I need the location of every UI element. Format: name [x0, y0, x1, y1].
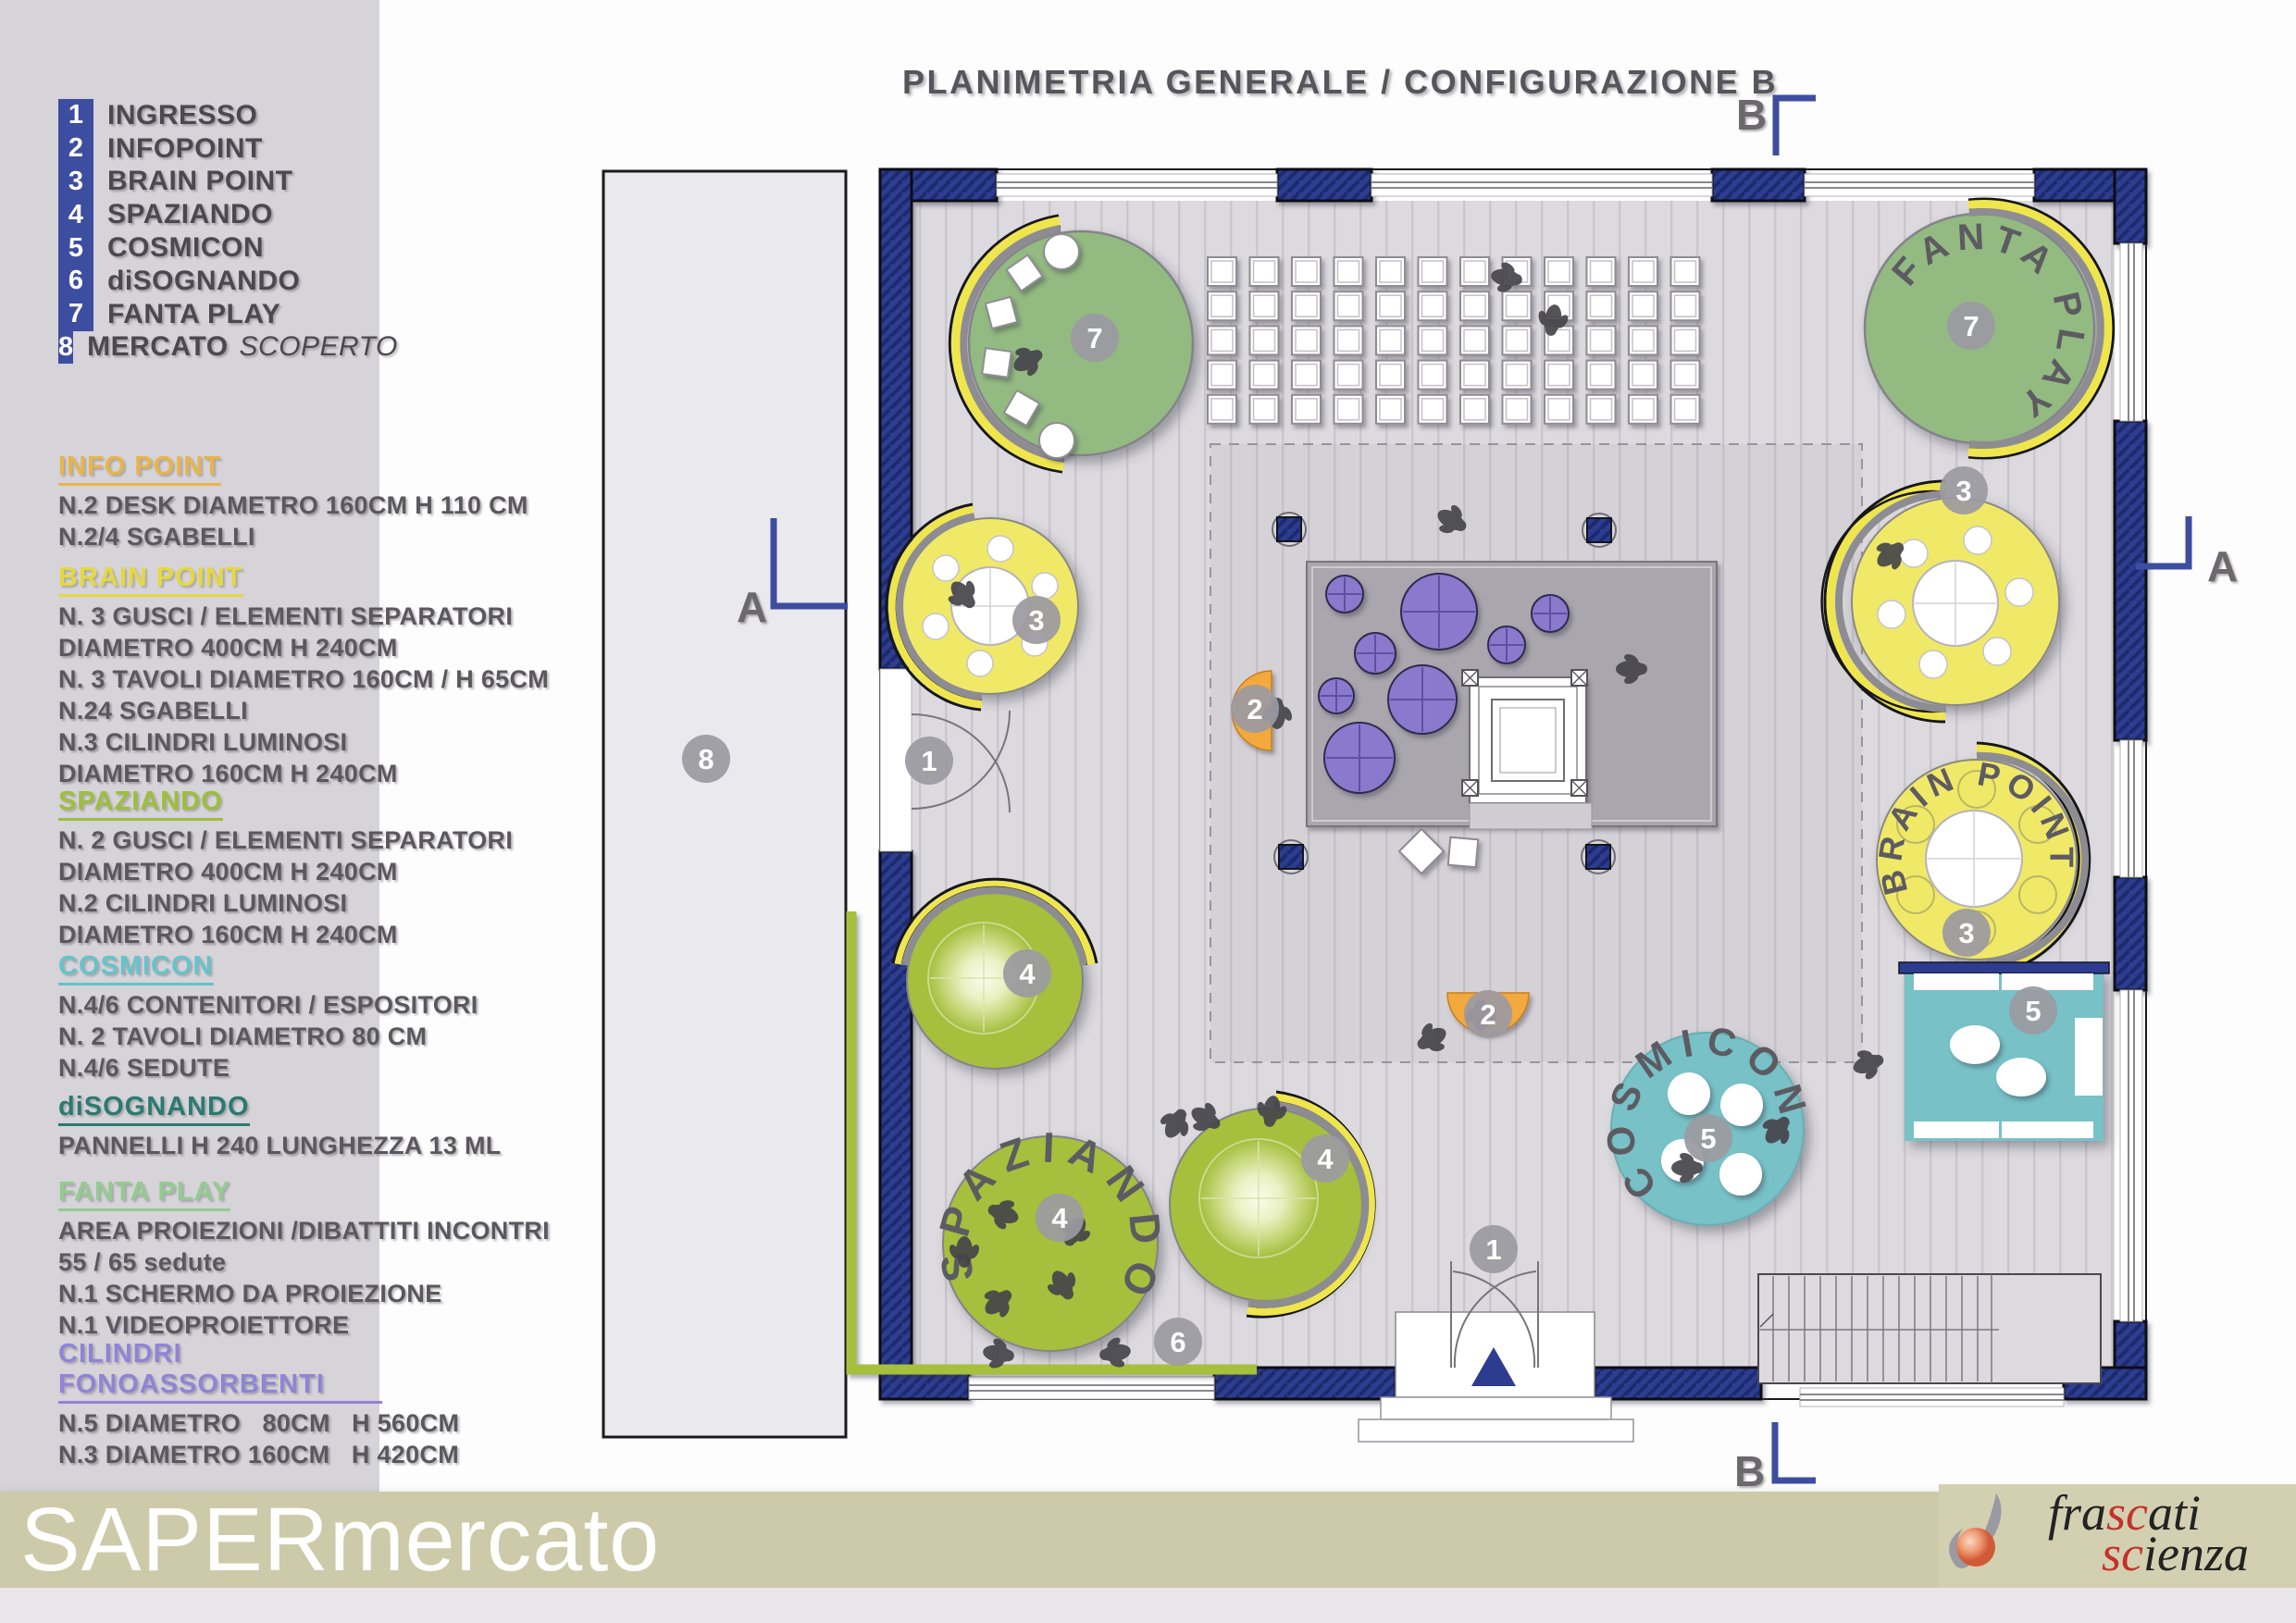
badge-number: 4	[1317, 1143, 1334, 1175]
area-badges: 1 1 2 2 3 3 3 4 4 4 5 5 6 7 7 8	[682, 302, 2057, 1366]
wall-segment	[880, 851, 912, 1368]
badge-number: 3	[1958, 917, 1974, 949]
legend-list: 1 INGRESSO 2 INFOPOINT 3 BRAIN POINT 4 S…	[0, 99, 379, 364]
luminous-glow	[1201, 1141, 1316, 1256]
spec-line: N. 2 GUSCI / ELEMENTI SEPARATORI	[58, 824, 382, 856]
window	[1800, 1388, 2064, 1406]
brand-wordmark: SAPERmercato	[20, 1492, 660, 1588]
badge-fanta-play: 7	[1947, 302, 1995, 350]
legend-item-spaziando: 4 SPAZIANDO	[0, 198, 379, 231]
fanta-play-label: FANTA PLAY	[1884, 217, 2091, 429]
truss-corners	[1462, 670, 1587, 796]
section-letter: A	[2207, 542, 2238, 590]
footer-band: SAPERmercato frascati scienza	[0, 1492, 2296, 1588]
spec-line: N.2 DESK DIAMETRO 160CM H 110 CM	[58, 489, 382, 521]
column	[1274, 840, 1308, 873]
spec-line: DIAMETRO 400CM H 240CM	[58, 856, 382, 887]
legend-item-fanta-play: 7 FANTA PLAY	[0, 298, 379, 331]
projection-zone-boundary	[1210, 444, 1862, 1062]
spec-section-disognando: diSOGNANDO PANNELLI H 240 LUNGHEZZA 13 M…	[58, 1092, 382, 1161]
spec-title: CILINDRI FONOASSORBENTI	[58, 1339, 382, 1404]
cylinder-cross-lines	[1321, 576, 1567, 791]
legend-label: diSOGNANDO	[107, 265, 300, 298]
spec-section-cosmicon: COSMICON N.4/6 CONTENITORI / ESPOSITORI …	[58, 951, 382, 1084]
logo-text: fra	[2048, 1485, 2106, 1541]
spec-section-cilindri: CILINDRI FONOASSORBENTI N.5 DIAMETRO 80C…	[58, 1339, 382, 1470]
wall-segment	[2115, 1321, 2146, 1399]
logo-text: ienza	[2143, 1526, 2249, 1581]
round-table	[951, 567, 1029, 645]
logo-word-scienza: scienza	[2102, 1525, 2249, 1582]
wall-segment	[2034, 169, 2146, 201]
legend-item-ingresso: 1 INGRESSO	[0, 99, 379, 132]
cylinder-small	[1488, 626, 1525, 663]
spec-title: SPAZIANDO	[58, 787, 223, 821]
legend-number: 7	[58, 298, 93, 331]
disognando-panels	[851, 911, 1257, 1369]
bottom-strip	[0, 1588, 2296, 1623]
badge-brain-point: 3	[1940, 466, 1988, 514]
window	[997, 174, 1277, 196]
spec-line: AREA PROIEZIONI /DIBATTITI INCONTRI	[58, 1215, 382, 1246]
spec-line: N.4/6 SEDUTE	[58, 1052, 382, 1084]
brain-point-area-right	[1822, 481, 2059, 722]
cylinder-small	[1532, 595, 1569, 632]
mercato-scoperto-area	[603, 171, 846, 1437]
stool-outlines	[1897, 771, 2056, 948]
side-door-swing	[912, 711, 1010, 812]
section-line-b-top	[1776, 98, 1816, 155]
column	[1582, 514, 1616, 547]
badge-mercato: 8	[682, 735, 730, 783]
wall-segment	[1214, 1368, 1396, 1399]
fanta-play-area-right: FANTA PLAY	[1865, 199, 2114, 458]
walls	[880, 169, 2146, 1399]
badge-number: 7	[1086, 322, 1102, 354]
spec-section-fanta-play: FANTA PLAY AREA PROIEZIONI /DIBATTITI IN…	[58, 1177, 382, 1341]
window	[1805, 174, 2034, 196]
spec-section-spaziando: SPAZIANDO N. 2 GUSCI / ELEMENTI SEPARATO…	[58, 787, 382, 950]
legend-number: 5	[58, 231, 93, 265]
badge-spaziando: 4	[1003, 949, 1051, 997]
badge-ingresso: 1	[905, 737, 953, 785]
wall-segment	[1277, 169, 1371, 201]
badge-number: 2	[1247, 693, 1262, 725]
badge-number: 5	[2025, 995, 2041, 1027]
logo-mark-icon	[1939, 1484, 2050, 1588]
brain-point-area-labeled: BRAIN POINT	[1870, 743, 2089, 975]
legend-number: 2	[58, 132, 93, 166]
badge-number: 3	[1028, 604, 1044, 637]
legend-label: SPAZIANDO	[107, 198, 273, 231]
wall-segment	[2064, 1368, 2146, 1399]
window	[969, 1377, 1214, 1399]
entrance-step	[1359, 1419, 1633, 1442]
spec-title: COSMICON	[58, 951, 214, 985]
spec-line: N.24 SGABELLI	[58, 695, 382, 726]
badge-number: 8	[698, 743, 714, 775]
cylinder-small	[1326, 576, 1363, 613]
badge-disognando: 6	[1154, 1318, 1202, 1366]
carpet-inner-line	[1312, 567, 1711, 821]
display-boxes	[1399, 829, 1478, 873]
spec-line: N.5 DIAMETRO 80CM H 560CM	[58, 1407, 382, 1439]
structural-columns	[1272, 513, 1616, 873]
spec-line: N. 3 TAVOLI DIAMETRO 160CM / H 65CM	[58, 663, 382, 695]
wall-segment	[880, 169, 912, 669]
spec-line: N. 2 TAVOLI DIAMETRO 80 CM	[58, 1021, 382, 1052]
legend-item-cosmicon: 5 COSMICON	[0, 231, 379, 265]
entrance-arrow	[1471, 1347, 1516, 1386]
carpet	[1307, 562, 1717, 826]
badge-number: 3	[1955, 475, 1971, 507]
spec-line: N.1 SCHERMO DA PROIEZIONE	[58, 1278, 382, 1309]
fanta-play-area-left	[949, 216, 1193, 472]
badge-brain-point: 3	[1012, 596, 1061, 644]
projection-stage	[1462, 670, 1592, 829]
section-line-a-right	[2136, 516, 2189, 566]
cylinder-small	[1355, 633, 1396, 674]
stage-platform	[1470, 803, 1592, 829]
spaziando-label: SPAZIANDO	[928, 1123, 1172, 1314]
spec-line: N.3 CILINDRI LUMINOSI	[58, 726, 382, 758]
legend-item-mercato: 8 MERCATOSCOPERTO	[0, 331, 379, 365]
legend-number: 1	[58, 99, 93, 132]
luminous-cylinder	[1926, 811, 2022, 907]
spec-line: DIAMETRO 400CM H 240CM	[58, 632, 382, 663]
people	[940, 258, 1914, 1373]
cylinder-large	[1324, 723, 1395, 793]
legend-label: BRAIN POINT	[107, 166, 293, 199]
wall-segment	[2115, 421, 2146, 740]
round-table	[1913, 561, 1998, 646]
column	[1582, 840, 1615, 873]
section-letter: B	[1734, 1447, 1765, 1495]
chairs	[982, 234, 1079, 458]
legend-item-infopoint: 2 INFOPOINT	[0, 132, 379, 166]
badge-ingresso: 1	[1470, 1225, 1518, 1273]
benches	[1914, 973, 2103, 1138]
window	[1371, 174, 1712, 196]
spec-section-info-point: INFO POINT N.2 DESK DIAMETRO 160CM H 110…	[58, 452, 382, 552]
cosmicon-area-circle: COSMICON	[1597, 1018, 1818, 1225]
luminous-cylinder-shell	[907, 893, 1083, 1069]
acoustic-cylinders	[1319, 574, 1569, 793]
badge-cosmicon: 5	[2009, 986, 2057, 1035]
spaziando-area: SPAZIANDO	[893, 879, 1374, 1351]
badge-spaziando: 4	[1036, 1194, 1084, 1242]
hall-floor	[912, 201, 2115, 1368]
spec-line: N. 3 GUSCI / ELEMENTI SEPARATORI	[58, 601, 382, 632]
wall-segment	[880, 169, 997, 201]
spec-line: N.4/6 CONTENITORI / ESPOSITORI	[58, 989, 382, 1021]
page-title: PLANIMETRIA GENERALE / CONFIGURAZIONE B	[902, 63, 1778, 102]
luminous-cylinder-shell	[1170, 1109, 1362, 1301]
spec-line: N.1 VIDEOPROIETTORE	[58, 1309, 382, 1341]
legend-number: 3	[58, 166, 93, 199]
seat-rows	[1208, 257, 1700, 424]
wall-segment	[2115, 877, 2146, 990]
badge-number: 6	[1170, 1326, 1185, 1358]
section-line-a-left	[774, 518, 848, 606]
legend-number: 6	[58, 265, 93, 298]
stools	[1878, 527, 2033, 678]
infopoint-desk	[1232, 671, 1272, 750]
entrance-step	[1381, 1397, 1611, 1419]
brain-point-label: BRAIN POINT	[1870, 754, 2080, 898]
window	[2120, 990, 2142, 1321]
hall-outline	[880, 169, 2146, 1399]
legend-label: FANTA PLAY	[107, 298, 280, 331]
legend-number: 8	[58, 331, 73, 365]
cosmicon-label: COSMICON	[1597, 1018, 1818, 1208]
section-letter: A	[737, 583, 767, 631]
window	[2120, 243, 2142, 421]
legend-label-italic: SCOPERTO	[240, 331, 398, 363]
legend-item-brain-point: 3 BRAIN POINT	[0, 166, 379, 199]
wall-segment	[1595, 1368, 1761, 1399]
badge-number: 5	[1700, 1122, 1716, 1155]
badge-infopoint: 2	[1231, 685, 1279, 733]
spec-title: INFO POINT	[58, 452, 221, 486]
spec-title: diSOGNANDO	[58, 1092, 250, 1126]
tables	[1950, 1025, 2046, 1096]
sidebar: 1 INGRESSO 2 INFOPOINT 3 BRAIN POINT 4 S…	[0, 0, 379, 1623]
luminous-glow	[930, 924, 1037, 1032]
main-entrance	[1359, 1261, 1633, 1442]
legend-label-main: MERCATO	[87, 331, 228, 363]
section-markers: A A B B	[737, 91, 2238, 1495]
wall-segment	[2115, 169, 2146, 243]
door-swing	[1453, 1271, 1536, 1368]
legend-item-disognando: 6 diSOGNANDO	[0, 265, 379, 298]
column	[1272, 513, 1306, 546]
legend-label: INFOPOINT	[107, 132, 263, 166]
brain-point-area-left	[887, 504, 1078, 710]
badge-number: 1	[921, 745, 937, 777]
badge-number: 4	[1019, 958, 1036, 990]
badge-number: 2	[1480, 998, 1496, 1031]
window	[2120, 740, 2142, 877]
spec-line: DIAMETRO 160CM H 240CM	[58, 758, 382, 789]
spec-line: N.3 DIAMETRO 160CM H 420CM	[58, 1439, 382, 1470]
central-carpet-zone	[1307, 562, 1717, 829]
stairs	[1758, 1274, 2101, 1406]
spaziando-shell	[943, 1136, 1158, 1351]
section-line-b-bottom	[1775, 1422, 1816, 1481]
vestibule	[1396, 1312, 1595, 1397]
frascati-scienza-logo: frascati scienza	[1939, 1484, 2296, 1588]
spec-line: N.2/4 SGABELLI	[58, 521, 382, 552]
spec-title: BRAIN POINT	[58, 563, 243, 597]
spec-line: DIAMETRO 160CM H 240CM	[58, 919, 382, 950]
spec-title: FANTA PLAY	[58, 1177, 230, 1211]
spec-section-brain-point: BRAIN POINT N. 3 GUSCI / ELEMENTI SEPARA…	[58, 563, 382, 789]
wall-segment	[1712, 169, 1805, 201]
badge-fanta-play: 7	[1071, 314, 1119, 362]
infopoint-desk	[1447, 993, 1529, 1034]
badge-number: 7	[1963, 310, 1979, 342]
wall-segment	[880, 1368, 969, 1399]
logo-text-red: sc	[2102, 1526, 2143, 1581]
windows	[880, 174, 2142, 1399]
legend-label: MERCATOSCOPERTO	[87, 331, 398, 365]
cylinder-small	[1319, 678, 1354, 713]
legend-number: 4	[58, 198, 93, 231]
badge-cosmicon: 5	[1684, 1114, 1732, 1162]
badge-spaziando: 4	[1301, 1134, 1349, 1183]
stools	[923, 536, 1058, 676]
floorplan-poster: 1 INGRESSO 2 INFOPOINT 3 BRAIN POINT 4 S…	[0, 0, 2296, 1623]
badge-number: 1	[1485, 1233, 1501, 1266]
spec-line: PANNELLI H 240 LUNGHEZZA 13 ML	[58, 1130, 382, 1161]
cylinder-large	[1401, 574, 1477, 650]
cylinder-large	[1388, 665, 1457, 734]
legend-label: INGRESSO	[107, 99, 257, 132]
spec-line: N.2 CILINDRI LUMINOSI	[58, 887, 382, 919]
cosmicon-seats	[1661, 1072, 1763, 1196]
legend-label: COSMICON	[107, 231, 264, 265]
badge-brain-point: 3	[1942, 909, 1991, 957]
panel-wall	[1899, 962, 2109, 973]
cosmicon-area-square	[1899, 962, 2109, 1141]
wall-opening	[880, 669, 912, 851]
spec-line: 55 / 65 sedute	[58, 1246, 382, 1278]
badge-number: 4	[1051, 1202, 1068, 1234]
badge-infopoint: 2	[1464, 990, 1512, 1038]
